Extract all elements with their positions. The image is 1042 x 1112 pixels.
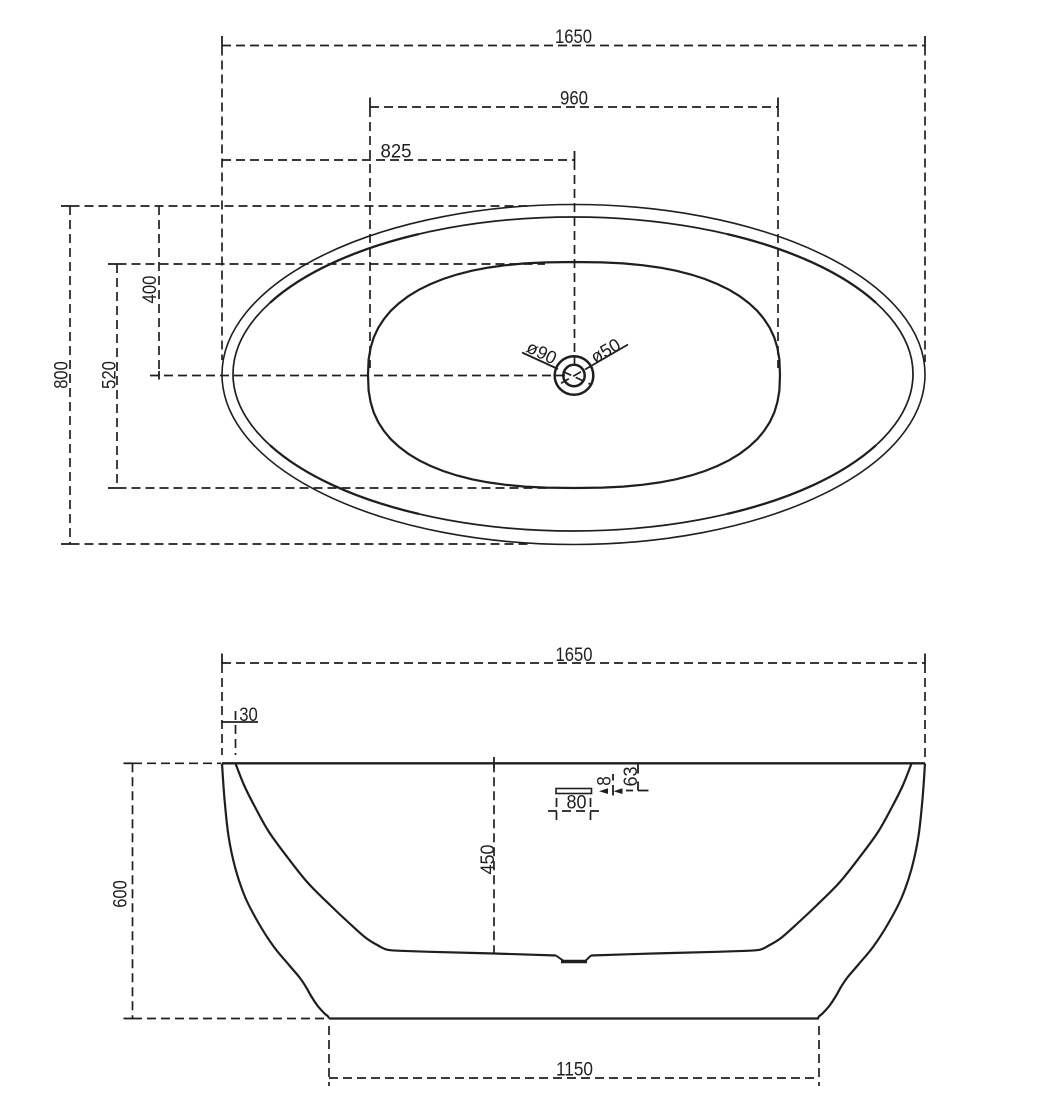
svg-text:1650: 1650: [556, 645, 593, 666]
svg-text:30: 30: [239, 705, 258, 726]
svg-text:400: 400: [140, 276, 161, 304]
svg-text:825: 825: [381, 142, 412, 163]
svg-text:63: 63: [621, 767, 642, 787]
svg-text:600: 600: [111, 880, 132, 908]
svg-text:800: 800: [52, 361, 73, 389]
svg-text:960: 960: [560, 89, 588, 110]
svg-text:80: 80: [567, 793, 587, 814]
svg-text:520: 520: [100, 361, 121, 389]
svg-text:1650: 1650: [555, 27, 592, 48]
svg-text:450: 450: [478, 845, 499, 875]
svg-text:1150: 1150: [556, 1060, 593, 1081]
